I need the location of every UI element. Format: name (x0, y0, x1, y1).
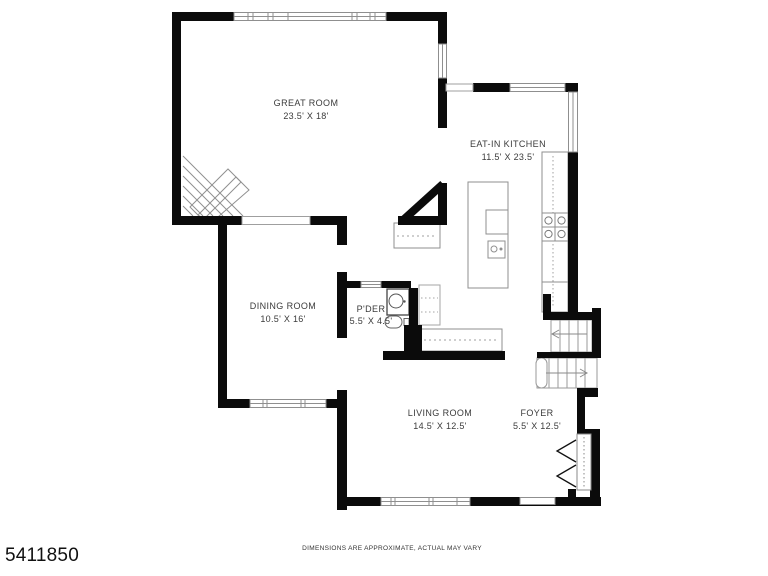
room-dims: 11.5' X 23.5' (470, 151, 546, 164)
window-foyer-bottom (520, 498, 555, 505)
door-swing-icon (557, 465, 576, 487)
cased-opening-kitchen (446, 84, 473, 91)
window-kitchen-top (510, 84, 565, 92)
window-kitchen-right (569, 92, 578, 152)
room-dims: 14.5' X 12.5' (408, 420, 472, 433)
room-label-eat-in-kitchen: EAT-IN KITCHEN 11.5' X 23.5' (470, 138, 546, 164)
window-dining-bottom (250, 400, 326, 408)
window-powder-top (361, 282, 381, 288)
room-label-powder-room: P'DER 5.5' X 4.5' (350, 304, 393, 327)
cased-opening (242, 217, 310, 225)
room-label-great-room: GREAT ROOM 23.5' X 18' (274, 97, 339, 123)
room-label-living-room: LIVING ROOM 14.5' X 12.5' (408, 407, 472, 433)
room-dims: 10.5' X 16' (250, 313, 316, 326)
island-sink-icon (491, 246, 497, 252)
room-label-foyer: FOYER 5.5' X 12.5' (513, 407, 561, 433)
room-label-dining-room: DINING ROOM 10.5' X 16' (250, 300, 316, 326)
cooktop-icon (542, 213, 568, 241)
stair-newel (536, 358, 547, 388)
room-name: EAT-IN KITCHEN (470, 138, 546, 151)
room-name: P'DER (350, 304, 393, 316)
room-name: DINING ROOM (250, 300, 316, 313)
corner-hatch-detail (183, 156, 249, 223)
door-swing-icon (557, 440, 576, 462)
window-living-bottom (381, 498, 470, 506)
entry-door (557, 434, 591, 490)
window-great-top (234, 13, 386, 21)
window-great-right (439, 44, 447, 78)
disclaimer-note: DIMENSIONS ARE APPROXIMATE, ACTUAL MAY V… (302, 545, 482, 552)
kitchen-base-cabinet (420, 329, 502, 351)
kitchen-island (468, 182, 508, 288)
corner-cabinet (394, 223, 440, 248)
floorplan-canvas: GREAT ROOM 23.5' X 18' EAT-IN KITCHEN 11… (0, 0, 768, 576)
room-dims: 5.5' X 12.5' (513, 420, 561, 433)
room-dims: 23.5' X 18' (274, 110, 339, 123)
room-dims: 5.5' X 4.5' (350, 316, 393, 328)
listing-id: 5411850 (5, 546, 79, 566)
room-name: GREAT ROOM (274, 97, 339, 110)
room-name: LIVING ROOM (408, 407, 472, 420)
floorplan-drawing (0, 0, 768, 576)
pantry-closet (419, 285, 440, 325)
room-name: FOYER (513, 407, 561, 420)
